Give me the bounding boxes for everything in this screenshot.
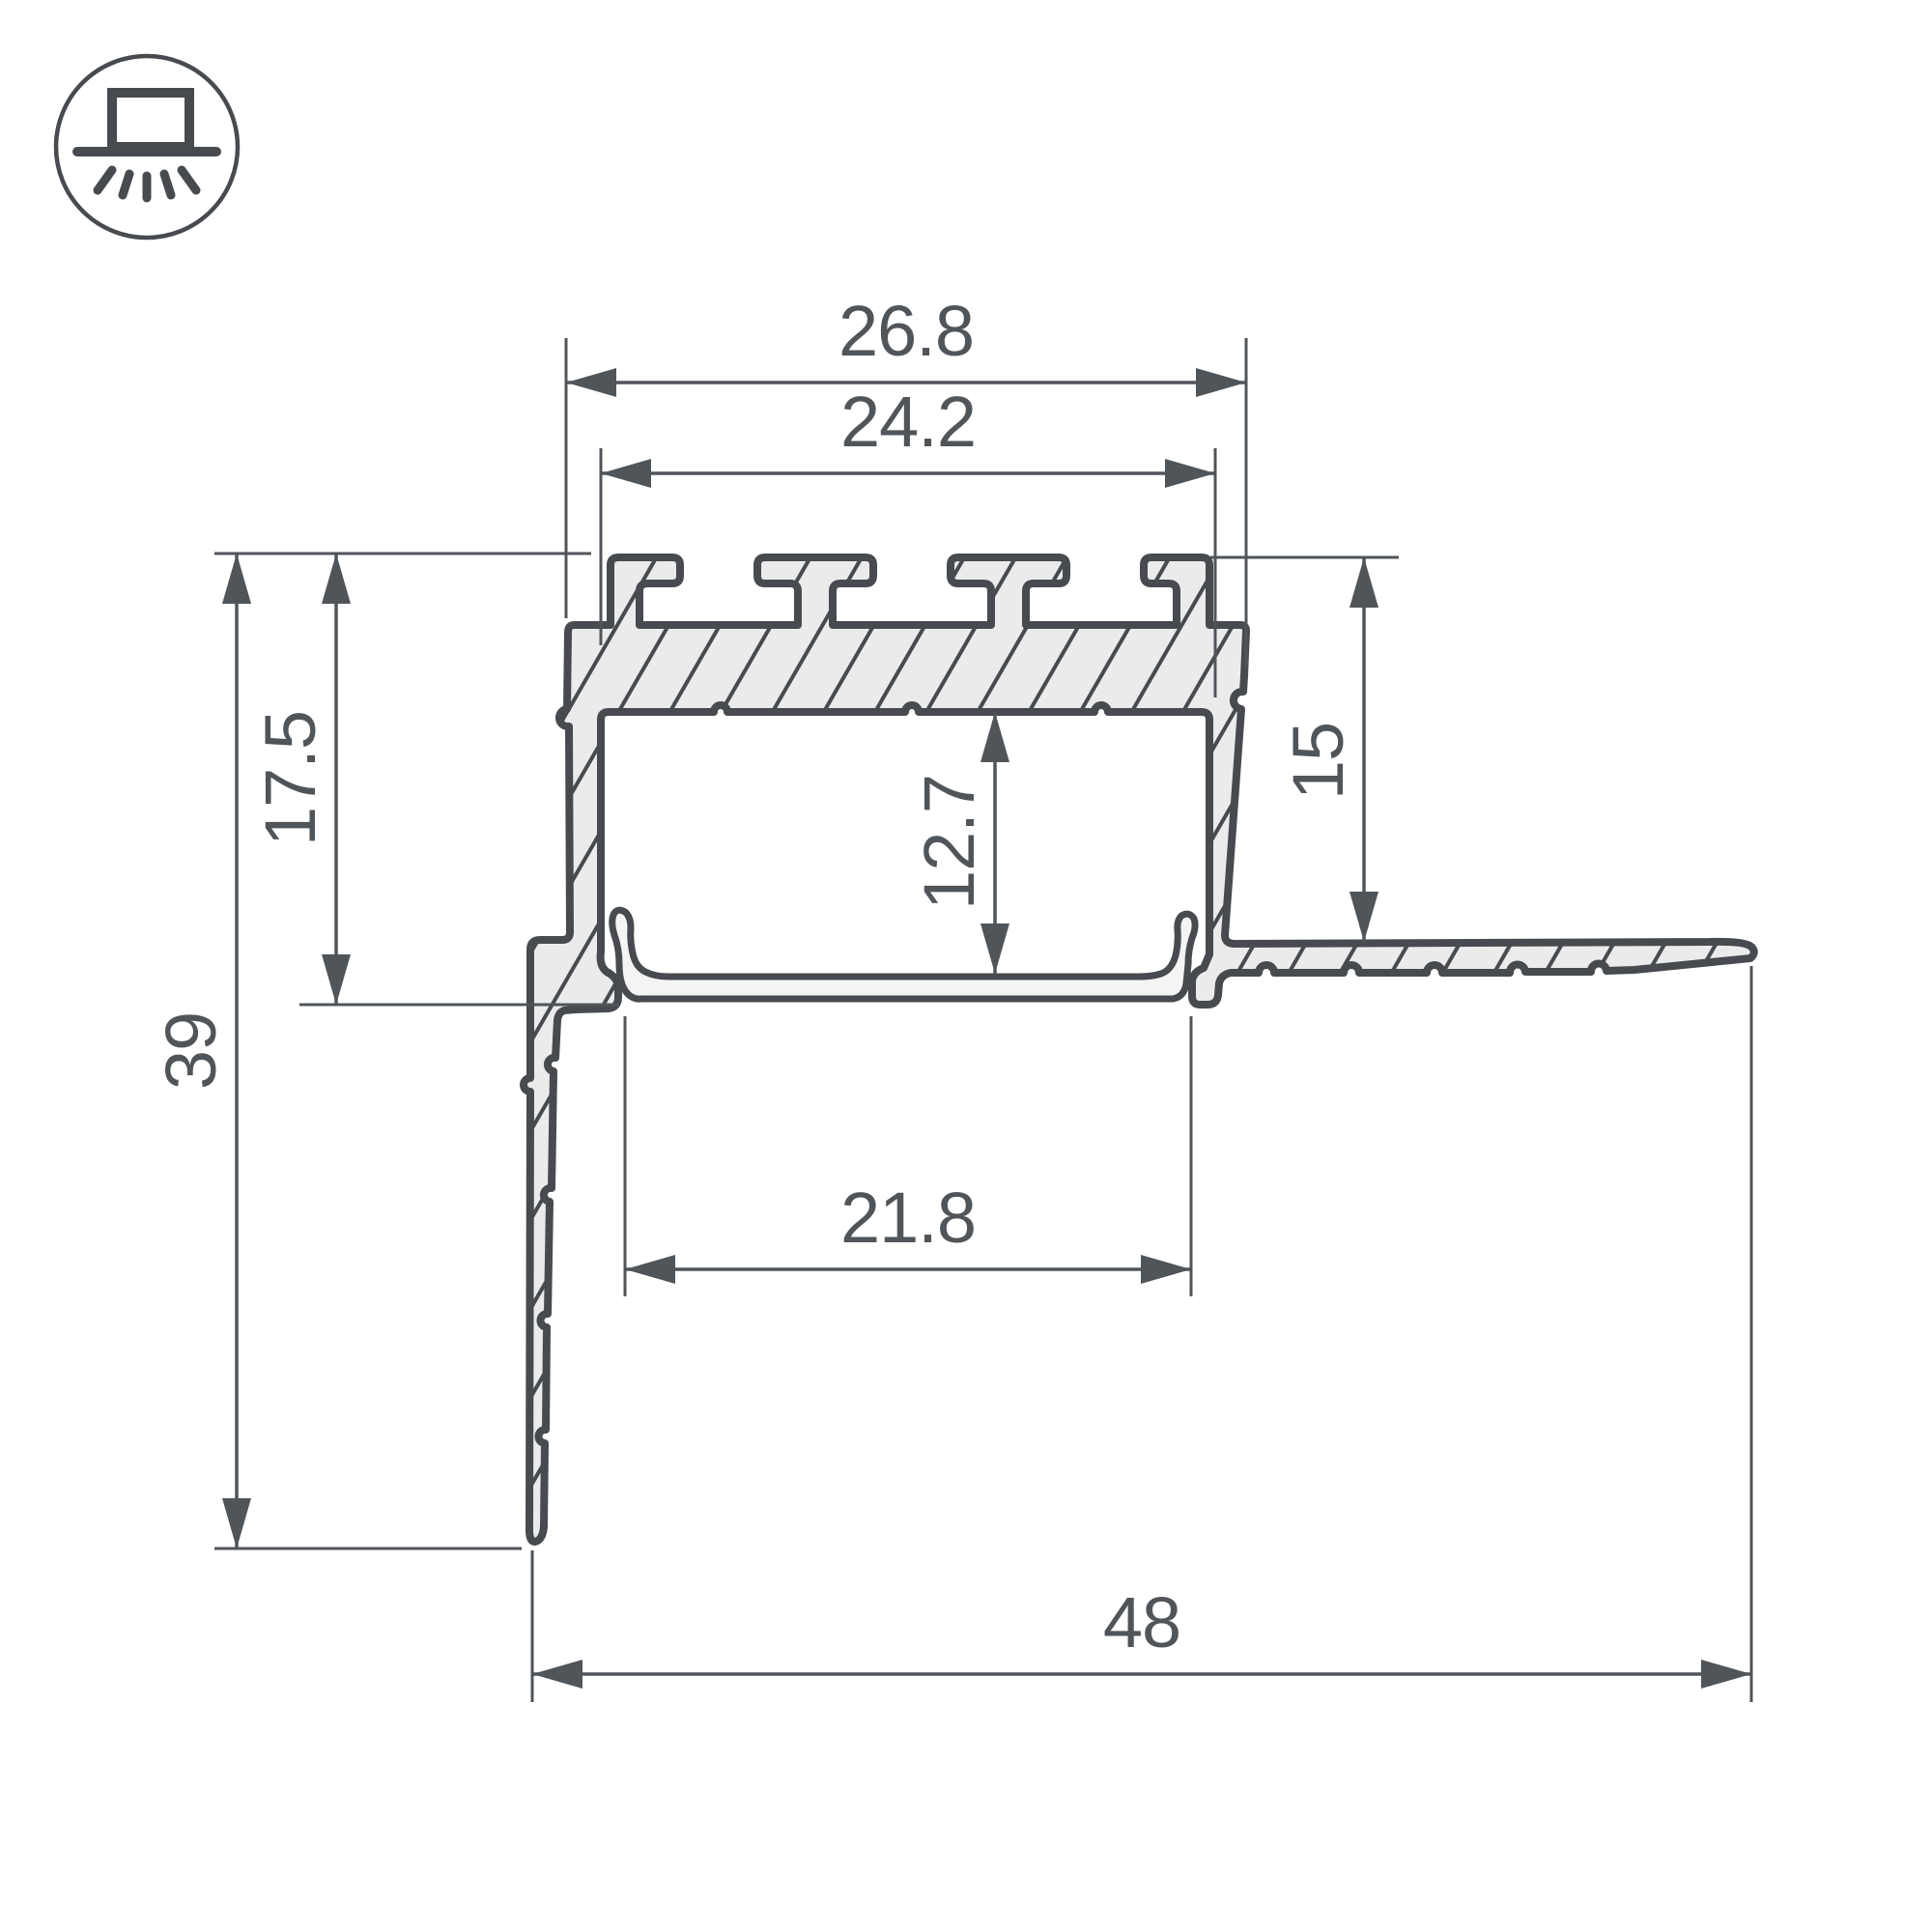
profile-body bbox=[524, 557, 1754, 1542]
dimension-top-outer-width: 26.8 bbox=[566, 291, 1246, 668]
dimension-inner-height: 12.7 bbox=[909, 712, 1009, 974]
dimension-total-width: 48 bbox=[532, 966, 1751, 1702]
lamp-body-icon-part bbox=[112, 93, 189, 147]
recessed-mount-light-icon bbox=[56, 56, 238, 238]
dimension-label: 48 bbox=[1103, 1582, 1180, 1662]
dimension-label: 24.2 bbox=[840, 382, 976, 462]
technical-drawing: 26.8 24.2 39 17.5 bbox=[0, 0, 1932, 1932]
diffuser-insert bbox=[612, 910, 1195, 999]
profile-cross-section bbox=[524, 557, 1754, 1542]
dimension-total-height: 39 bbox=[151, 554, 591, 1548]
dimension-label: 12.7 bbox=[909, 775, 989, 910]
drawing-canvas: 26.8 24.2 39 17.5 bbox=[0, 0, 1932, 1932]
dimension-label: 21.8 bbox=[840, 1178, 976, 1258]
dimension-label: 26.8 bbox=[838, 291, 974, 371]
dimension-opening-width: 21.8 bbox=[625, 1016, 1191, 1296]
dimension-label: 39 bbox=[151, 1012, 231, 1090]
dimension-label: 15 bbox=[1278, 723, 1358, 800]
dimension-label: 17.5 bbox=[250, 711, 330, 846]
light-rays-icon-part bbox=[98, 170, 196, 198]
